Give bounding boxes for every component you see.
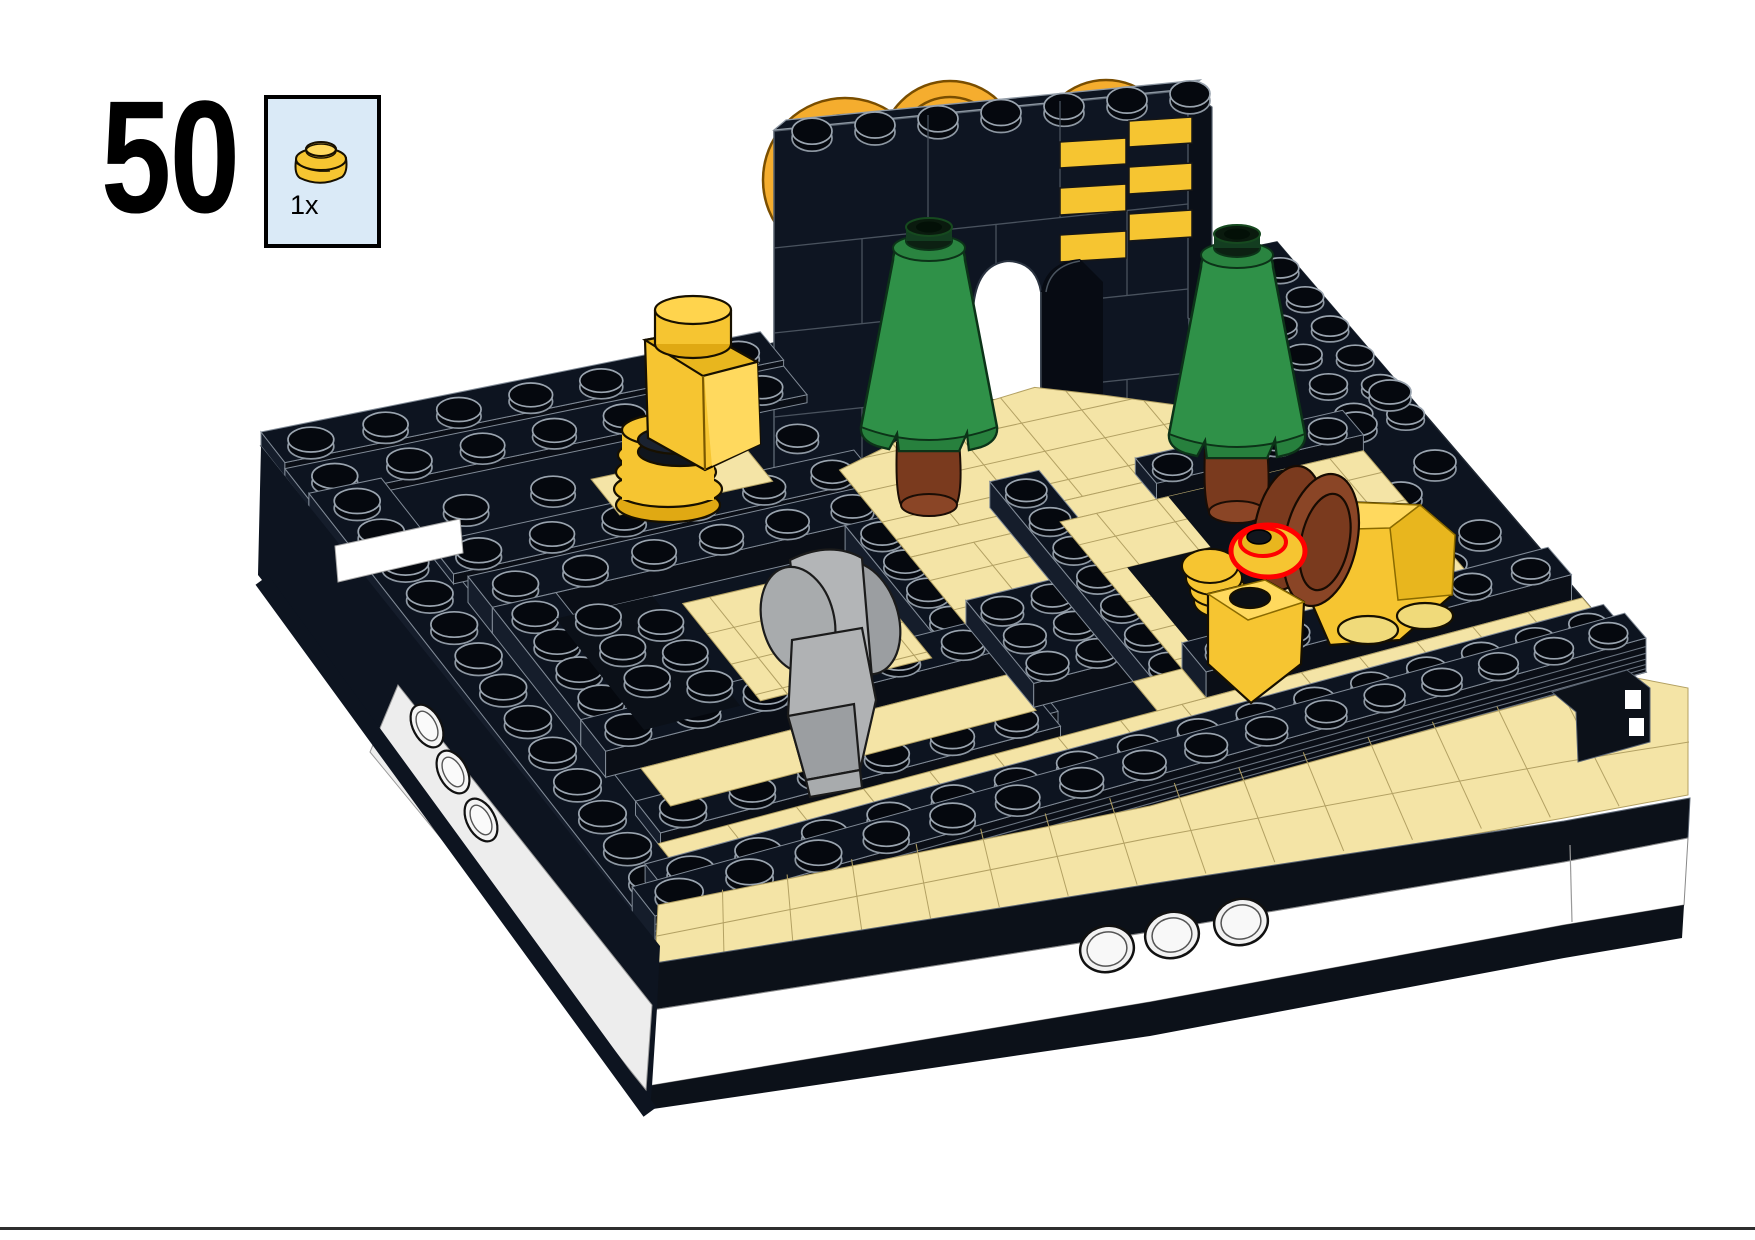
svg-text:50: 50 — [101, 67, 238, 247]
svg-text:1x: 1x — [290, 190, 319, 220]
